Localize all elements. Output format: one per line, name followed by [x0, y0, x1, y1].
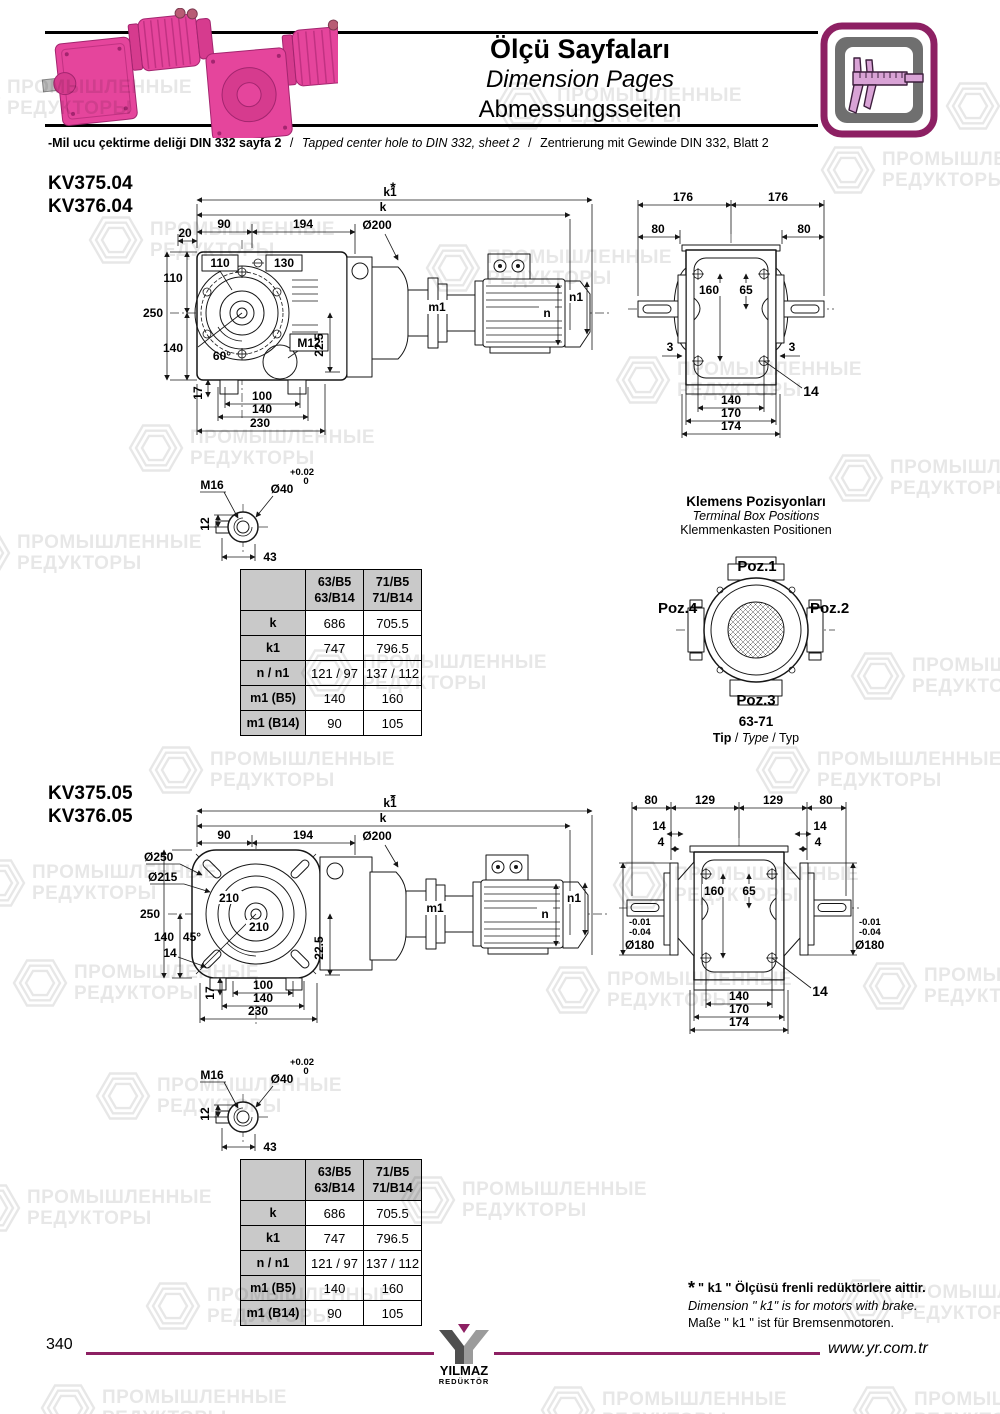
- dim-label: Ø250: [144, 850, 174, 864]
- poz3-label: Poz.3: [726, 692, 786, 709]
- dim-label: 110: [163, 271, 183, 285]
- poz2-label: Poz.2: [810, 600, 849, 617]
- dim-label: n: [541, 907, 548, 921]
- s2-side-geometry: [619, 838, 859, 998]
- dimension-table-2: 63/B563/B14 71/B571/B14 k686705.5 k17477…: [240, 1159, 422, 1326]
- dim-label: Ø200: [362, 829, 392, 843]
- table-row: m1 (B14)90105: [241, 711, 422, 736]
- dim-label: 100: [253, 978, 273, 992]
- dim-label: 90: [217, 828, 231, 842]
- dim-label: 140: [163, 341, 183, 355]
- dim-label: n1: [567, 891, 581, 905]
- dim-label: 0: [303, 476, 308, 487]
- dim-label: -0.04: [859, 927, 881, 938]
- dim-label: 65: [739, 283, 753, 297]
- page-number: 340: [46, 1336, 73, 1354]
- catalog-page: ПРОМЫШЛЕННЫЕРЕДУКТОРЫ ПРОМЫШЛЕННЫЕРЕДУКТ…: [0, 0, 1000, 1414]
- dim-label: M16: [200, 1068, 224, 1082]
- page-title: Ölçü Sayfaları: [340, 34, 820, 65]
- dim-label: 230: [248, 1004, 268, 1018]
- dim-label: k1: [383, 185, 397, 199]
- s2-front-view-drawing: * k1 k 90 194 Ø200 Ø250 Ø215 210 210 250…: [140, 795, 660, 1067]
- dimension-table-1: 63/B563/B14 71/B571/B14 k686705.5 k17477…: [240, 569, 422, 736]
- table-row: k1747796.5: [241, 636, 422, 661]
- dim-label: 80: [797, 222, 811, 236]
- dim-label: Ø40: [271, 482, 294, 496]
- dim-label: +0.02: [290, 1057, 314, 1068]
- s1-side-view-drawing: 176 176 80 80 160 65 3 3 14 140 170 174: [620, 180, 960, 448]
- table-col-header: 63/B563/B14: [306, 570, 364, 611]
- table-col-header: 71/B571/B14: [364, 1160, 422, 1201]
- s2-front-geometry: [168, 840, 610, 1025]
- dim-label: 22.5: [312, 333, 326, 357]
- dim-label: 174: [729, 1015, 749, 1029]
- model-labels-1: KV375.04 KV376.04: [48, 172, 133, 218]
- s2-side-view-drawing: 80 129 129 80 14 4 14 4 160 65 -0.01 -0.…: [615, 790, 1000, 1052]
- din-note-en: Tapped center hole to DIN 332, sheet 2: [302, 136, 520, 150]
- dim-label: Ø40: [271, 1072, 294, 1086]
- page-title-de: Abmessungsseiten: [340, 95, 820, 125]
- table-row: n / n1121 / 97137 / 112: [241, 1251, 422, 1276]
- dim-label: 14: [163, 946, 177, 960]
- dim-label: 176: [673, 190, 693, 204]
- dim-label: 12: [198, 517, 212, 531]
- dim-label: Ø180: [625, 938, 655, 952]
- dim-label: 4: [815, 835, 822, 849]
- dim-label: 80: [644, 793, 658, 807]
- footnote-star: *: [688, 1278, 695, 1298]
- dim-label: 4: [658, 835, 665, 849]
- dim-label: 80: [651, 222, 665, 236]
- s2-shaft-detail-drawing: M16 Ø40 +0.02 0 12 43: [178, 1052, 358, 1160]
- dim-label: -0.04: [629, 927, 651, 938]
- dim-label: m1: [426, 901, 444, 915]
- watermark: ПРОМЫШЛЕННЫЕРЕДУКТОРЫ: [852, 1382, 1000, 1414]
- dim-label: n: [543, 306, 550, 320]
- watermark: ПРОМЫШЛЕННЫЕРЕДУКТОРЫ: [540, 1382, 787, 1414]
- watermark: ПРОМЫШЛЕННЫЕРЕДУКТОРЫ: [850, 648, 1000, 704]
- dim-label: 170: [721, 406, 741, 420]
- dim-label: 230: [250, 416, 270, 430]
- poz1-label: Poz.1: [722, 558, 792, 575]
- din-note-de: Zentrierung mit Gewinde DIN 332, Blatt 2: [540, 136, 769, 150]
- dim-label: 129: [695, 793, 715, 807]
- brand-subname: REDÜKTÖR: [430, 1377, 498, 1386]
- watermark: ПРОМЫШЛЕННЫЕРЕДУКТОРЫ: [40, 1380, 287, 1414]
- table-col-header: 71/B571/B14: [364, 570, 422, 611]
- dim-label: 140: [729, 989, 749, 1003]
- dim-label: 0: [303, 1066, 308, 1077]
- dim-label: 110: [210, 256, 230, 270]
- terminal-box-heading: Klemens Pozisyonları Terminal Box Positi…: [640, 494, 872, 537]
- caliper-icon: [820, 22, 938, 138]
- table-row: n / n1121 / 97137 / 112: [241, 661, 422, 686]
- din-note: -Mil ucu çektirme deliği DIN 332 sayfa 2…: [48, 136, 769, 150]
- table-row: k686705.5: [241, 611, 422, 636]
- dim-label: 14: [812, 983, 828, 999]
- dim-label: 14: [652, 819, 666, 833]
- footer-rule-left: [86, 1352, 434, 1355]
- watermark: ПРОМЫШЛЕННЫЕРЕДУКТОРЫ: [400, 1172, 647, 1228]
- dim-label: m1: [428, 300, 446, 314]
- table-row: m1 (B5)140160: [241, 686, 422, 711]
- dim-label: k: [380, 200, 387, 214]
- dim-label: 80: [819, 793, 833, 807]
- dim-label: k1: [383, 796, 397, 810]
- model-labels-2: KV375.05 KV376.05: [48, 782, 133, 828]
- dim-label: 140: [252, 402, 272, 416]
- dim-label: +0.02: [290, 467, 314, 478]
- dim-label: 160: [699, 283, 719, 297]
- table-row: m1 (B14)90105: [241, 1301, 422, 1326]
- dim-label: k: [380, 811, 387, 825]
- dim-label: 45°: [183, 930, 201, 944]
- s2-shaft-labels: M16 Ø40 +0.02 0 12 43: [198, 1057, 314, 1154]
- dim-label: 17: [203, 986, 217, 1000]
- dim-label: M16: [200, 478, 224, 492]
- dim-label: 176: [768, 190, 788, 204]
- dim-label: 194: [293, 217, 313, 231]
- yilmaz-logo-icon: [436, 1324, 492, 1364]
- dim-label: 210: [219, 891, 239, 905]
- dim-label: 43: [263, 1140, 277, 1154]
- table-row: k686705.5: [241, 1201, 422, 1226]
- page-title-en: Dimension Pages: [340, 65, 820, 95]
- terminal-box-diagram: [668, 552, 843, 712]
- dim-label: 140: [253, 991, 273, 1005]
- website-url: www.yr.com.tr: [828, 1340, 928, 1358]
- dim-label: 60°: [213, 349, 231, 363]
- watermark: ПРОМЫШЛЕННЫЕРЕДУКТОРЫ: [0, 1180, 212, 1236]
- watermark: ПРОМЫШЛЕННЫЕРЕДУКТОРЫ: [945, 78, 1000, 134]
- dim-label: 12: [198, 1107, 212, 1121]
- type-label: Tip / Type / Typ: [700, 731, 812, 745]
- dim-label: 210: [249, 920, 269, 934]
- dim-label: 65: [742, 884, 756, 898]
- watermark: ПРОМЫШЛЕННЫЕРЕДУКТОРЫ: [0, 525, 202, 581]
- s1-side-geometry: [628, 234, 834, 400]
- page-title-block: Ölçü Sayfaları Dimension Pages Abmessung…: [340, 34, 820, 125]
- product-photo-gearmotors: [38, 8, 338, 138]
- dim-label: 174: [721, 419, 741, 433]
- din-note-tr: -Mil ucu çektirme deliği DIN 332 sayfa 2: [48, 136, 281, 150]
- dim-label: 194: [293, 828, 313, 842]
- table-row: m1 (B5)140160: [241, 1276, 422, 1301]
- terminal-size-label: 63-71: [716, 714, 796, 729]
- dim-label: Ø215: [148, 870, 178, 884]
- watermark: ПРОМЫШЛЕННЫЕРЕДУКТОРЫ: [148, 742, 395, 798]
- dim-label: Ø180: [855, 938, 885, 952]
- dim-label: 22.5: [312, 936, 326, 960]
- dim-label: 17: [191, 386, 205, 400]
- dim-label: 140: [721, 393, 741, 407]
- dim-label: 14: [813, 819, 827, 833]
- dim-label: n1: [569, 290, 583, 304]
- dim-label: 100: [252, 389, 272, 403]
- dim-label: 90: [217, 217, 231, 231]
- s1-shaft-labels: M16 Ø40 +0.02 0 12 43: [198, 467, 314, 564]
- poz4-label: Poz.4: [658, 600, 697, 617]
- dim-label: 170: [729, 1002, 749, 1016]
- dim-label: 14: [803, 383, 819, 399]
- dim-label: 3: [789, 340, 796, 354]
- dim-label: 250: [140, 907, 160, 921]
- dim-label: 129: [763, 793, 783, 807]
- brand-name: YILMAZ: [430, 1363, 498, 1378]
- footer-rule-right: [494, 1352, 820, 1355]
- table-row: k1747796.5: [241, 1226, 422, 1251]
- dim-label: 130: [274, 256, 294, 270]
- dim-label: 43: [263, 550, 277, 564]
- k1-footnote: *" k1 " Ölçüsü frenli redüktörlere aitti…: [688, 1279, 988, 1331]
- s1-front-view-drawing: * k1 k 90 194 Ø200 20 110 250 140 110 13…: [140, 182, 660, 454]
- dim-label: 3: [667, 340, 674, 354]
- s1-front-geometry: [170, 240, 610, 418]
- dim-label: 160: [704, 884, 724, 898]
- dim-label: Ø200: [362, 218, 392, 232]
- dim-label: 250: [143, 306, 163, 320]
- dim-label: 140: [154, 930, 174, 944]
- s1-shaft-detail-drawing: M16 Ø40 +0.02 0 12 43: [178, 462, 358, 570]
- dim-label: 20: [178, 226, 192, 240]
- table-col-header: 63/B563/B14: [306, 1160, 364, 1201]
